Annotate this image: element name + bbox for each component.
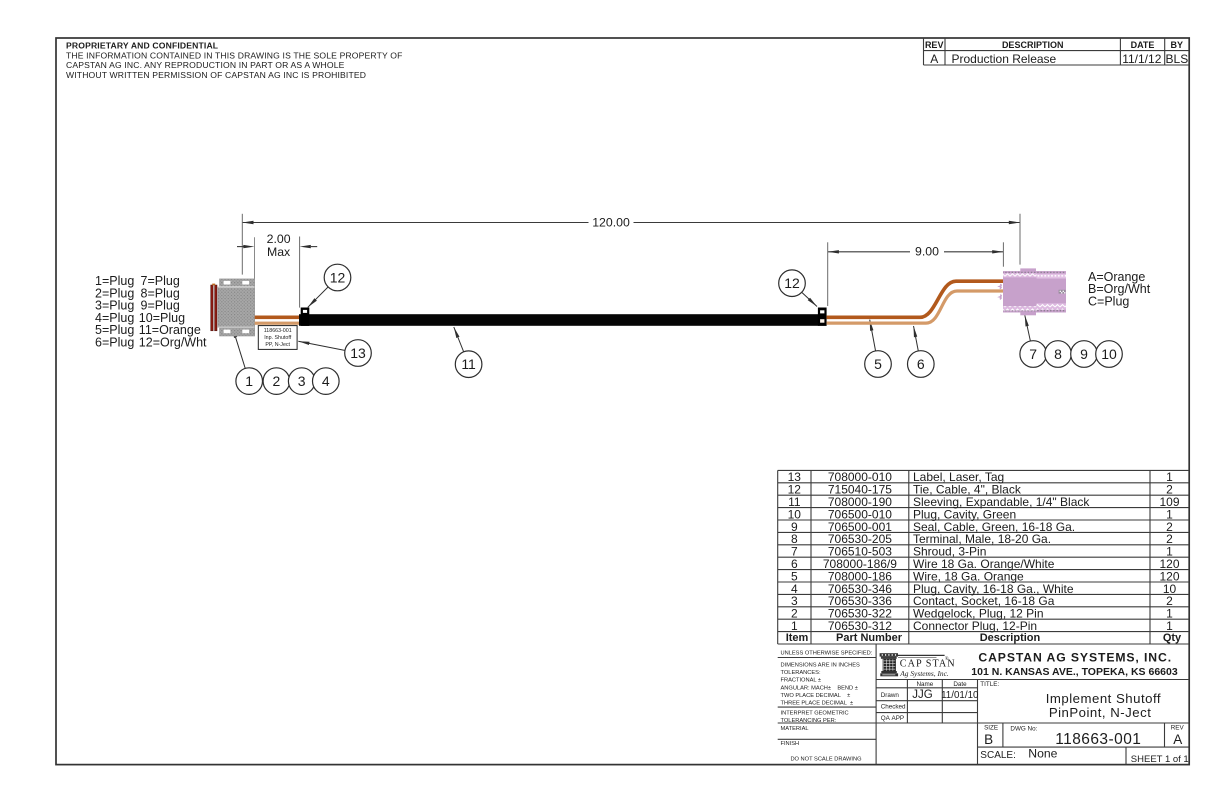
svg-text:6=Plug: 6=Plug xyxy=(95,336,134,350)
svg-text:706530-312: 706530-312 xyxy=(828,619,892,633)
svg-text:SCALE:: SCALE: xyxy=(980,750,1016,761)
svg-text:JJG: JJG xyxy=(912,689,933,701)
svg-text:None: None xyxy=(1028,747,1057,761)
svg-text:13: 13 xyxy=(350,345,366,361)
svg-text:REV: REV xyxy=(1171,724,1185,731)
svg-text:THREE PLACE DECIMAL ±: THREE PLACE DECIMAL ± xyxy=(781,700,854,706)
svg-text:THE INFORMATION CONTAINED IN T: THE INFORMATION CONTAINED IN THIS DRAWIN… xyxy=(66,50,403,60)
svg-text:TOLERANCES:: TOLERANCES: xyxy=(781,670,821,676)
svg-text:DESCRIPTION: DESCRIPTION xyxy=(1002,40,1064,50)
svg-text:DATE: DATE xyxy=(1131,40,1155,50)
svg-text:1: 1 xyxy=(1166,619,1173,633)
svg-text:ANGULAR: MACH± BEND ±: ANGULAR: MACH± BEND ± xyxy=(781,686,858,692)
svg-text:CAPSTAN AG SYSTEMS, INC.: CAPSTAN AG SYSTEMS, INC. xyxy=(978,651,1172,665)
svg-text:PROPRIETARY AND CONFIDENTIAL: PROPRIETARY AND CONFIDENTIAL xyxy=(66,41,218,51)
svg-text:FRACTIONAL ±: FRACTIONAL ± xyxy=(781,677,822,683)
svg-text:12: 12 xyxy=(330,269,346,285)
svg-text:PinPoint, N-Ject: PinPoint, N-Ject xyxy=(1049,705,1152,720)
svg-text:INTERPRET GEOMETRIC: INTERPRET GEOMETRIC xyxy=(781,711,849,717)
svg-text:2: 2 xyxy=(273,373,281,389)
svg-text:A: A xyxy=(930,52,938,66)
svg-text:Drawn: Drawn xyxy=(881,692,900,699)
svg-text:CAPSTAN AG INC. ANY REPRODUCTI: CAPSTAN AG INC. ANY REPRODUCTION IN PART… xyxy=(66,60,345,70)
svg-text:Qty: Qty xyxy=(1163,632,1182,644)
svg-text:Description: Description xyxy=(980,632,1041,644)
svg-text:118663-001: 118663-001 xyxy=(264,328,292,334)
svg-text:11/1/12: 11/1/12 xyxy=(1122,52,1161,66)
svg-text:SHEET 1 of 1: SHEET 1 of 1 xyxy=(1131,754,1189,765)
svg-text:Ag Systems, Inc.: Ag Systems, Inc. xyxy=(899,669,949,678)
svg-text:1: 1 xyxy=(791,619,798,633)
svg-text:Date: Date xyxy=(953,681,967,688)
svg-text:Name: Name xyxy=(917,681,934,688)
svg-text:BLS: BLS xyxy=(1166,52,1189,66)
svg-text:DO NOT SCALE DRAWING: DO NOT SCALE DRAWING xyxy=(790,756,861,762)
svg-text:Item: Item xyxy=(786,632,809,644)
svg-text:Production Release: Production Release xyxy=(952,52,1057,66)
svg-text:TOLERANCING PER:: TOLERANCING PER: xyxy=(781,718,837,724)
svg-text:5: 5 xyxy=(874,356,882,372)
svg-text:B: B xyxy=(984,732,993,747)
svg-text:12=Org/Wht: 12=Org/Wht xyxy=(139,336,207,350)
svg-text:QA APP: QA APP xyxy=(881,715,904,722)
svg-text:FINISH: FINISH xyxy=(781,741,800,747)
svg-text:12: 12 xyxy=(784,275,800,291)
svg-text:9.00: 9.00 xyxy=(915,245,939,259)
svg-text:Inp. Shutoff: Inp. Shutoff xyxy=(264,335,292,341)
svg-text:10: 10 xyxy=(1101,346,1117,362)
svg-text:MATERIAL: MATERIAL xyxy=(781,726,809,732)
svg-text:PP, N-Ject: PP, N-Ject xyxy=(265,342,290,348)
svg-text:101 N. KANSAS AVE., TOPEKA, KS: 101 N. KANSAS AVE., TOPEKA, KS 66603 xyxy=(971,666,1178,678)
svg-text:A: A xyxy=(1173,732,1182,747)
svg-text:8: 8 xyxy=(1054,346,1062,362)
svg-text:Connector Plug, 12-Pin: Connector Plug, 12-Pin xyxy=(913,619,1037,633)
svg-text:DIMENSIONS ARE IN INCHES: DIMENSIONS ARE IN INCHES xyxy=(781,663,861,669)
svg-text:Max: Max xyxy=(267,245,291,259)
svg-text:TITLE:: TITLE: xyxy=(980,681,999,688)
svg-text:9: 9 xyxy=(1080,346,1088,362)
svg-text:WITHOUT WRITTEN PERMISSION OF: WITHOUT WRITTEN PERMISSION OF CAPSTAN AG… xyxy=(66,70,366,80)
svg-text:BY: BY xyxy=(1171,40,1184,50)
svg-text:1: 1 xyxy=(245,373,253,389)
svg-text:120.00: 120.00 xyxy=(592,216,630,230)
svg-text:TWO PLACE DECIMAL ±: TWO PLACE DECIMAL ± xyxy=(781,693,851,699)
svg-text:Implement Shutoff: Implement Shutoff xyxy=(1046,691,1161,706)
svg-text:UNLESS OTHERWISE SPECIFIED:: UNLESS OTHERWISE SPECIFIED: xyxy=(781,651,873,657)
svg-text:2.00: 2.00 xyxy=(267,232,291,246)
svg-text:Part Number: Part Number xyxy=(836,632,903,644)
svg-text:11/01/10: 11/01/10 xyxy=(941,690,979,701)
svg-text:SIZE: SIZE xyxy=(984,725,998,732)
svg-text:6: 6 xyxy=(917,356,925,372)
svg-text:11: 11 xyxy=(461,356,476,372)
svg-text:DWG No:: DWG No: xyxy=(1010,725,1037,732)
svg-text:CAP STAN: CAP STAN xyxy=(900,658,956,669)
svg-text:7: 7 xyxy=(1029,346,1037,362)
svg-text:C=Plug: C=Plug xyxy=(1088,294,1129,308)
svg-text:Checked: Checked xyxy=(881,703,906,710)
svg-text:REV: REV xyxy=(925,40,944,50)
svg-text:118663-001: 118663-001 xyxy=(1055,731,1141,748)
svg-text:3: 3 xyxy=(298,373,306,389)
svg-text:4: 4 xyxy=(322,373,330,389)
